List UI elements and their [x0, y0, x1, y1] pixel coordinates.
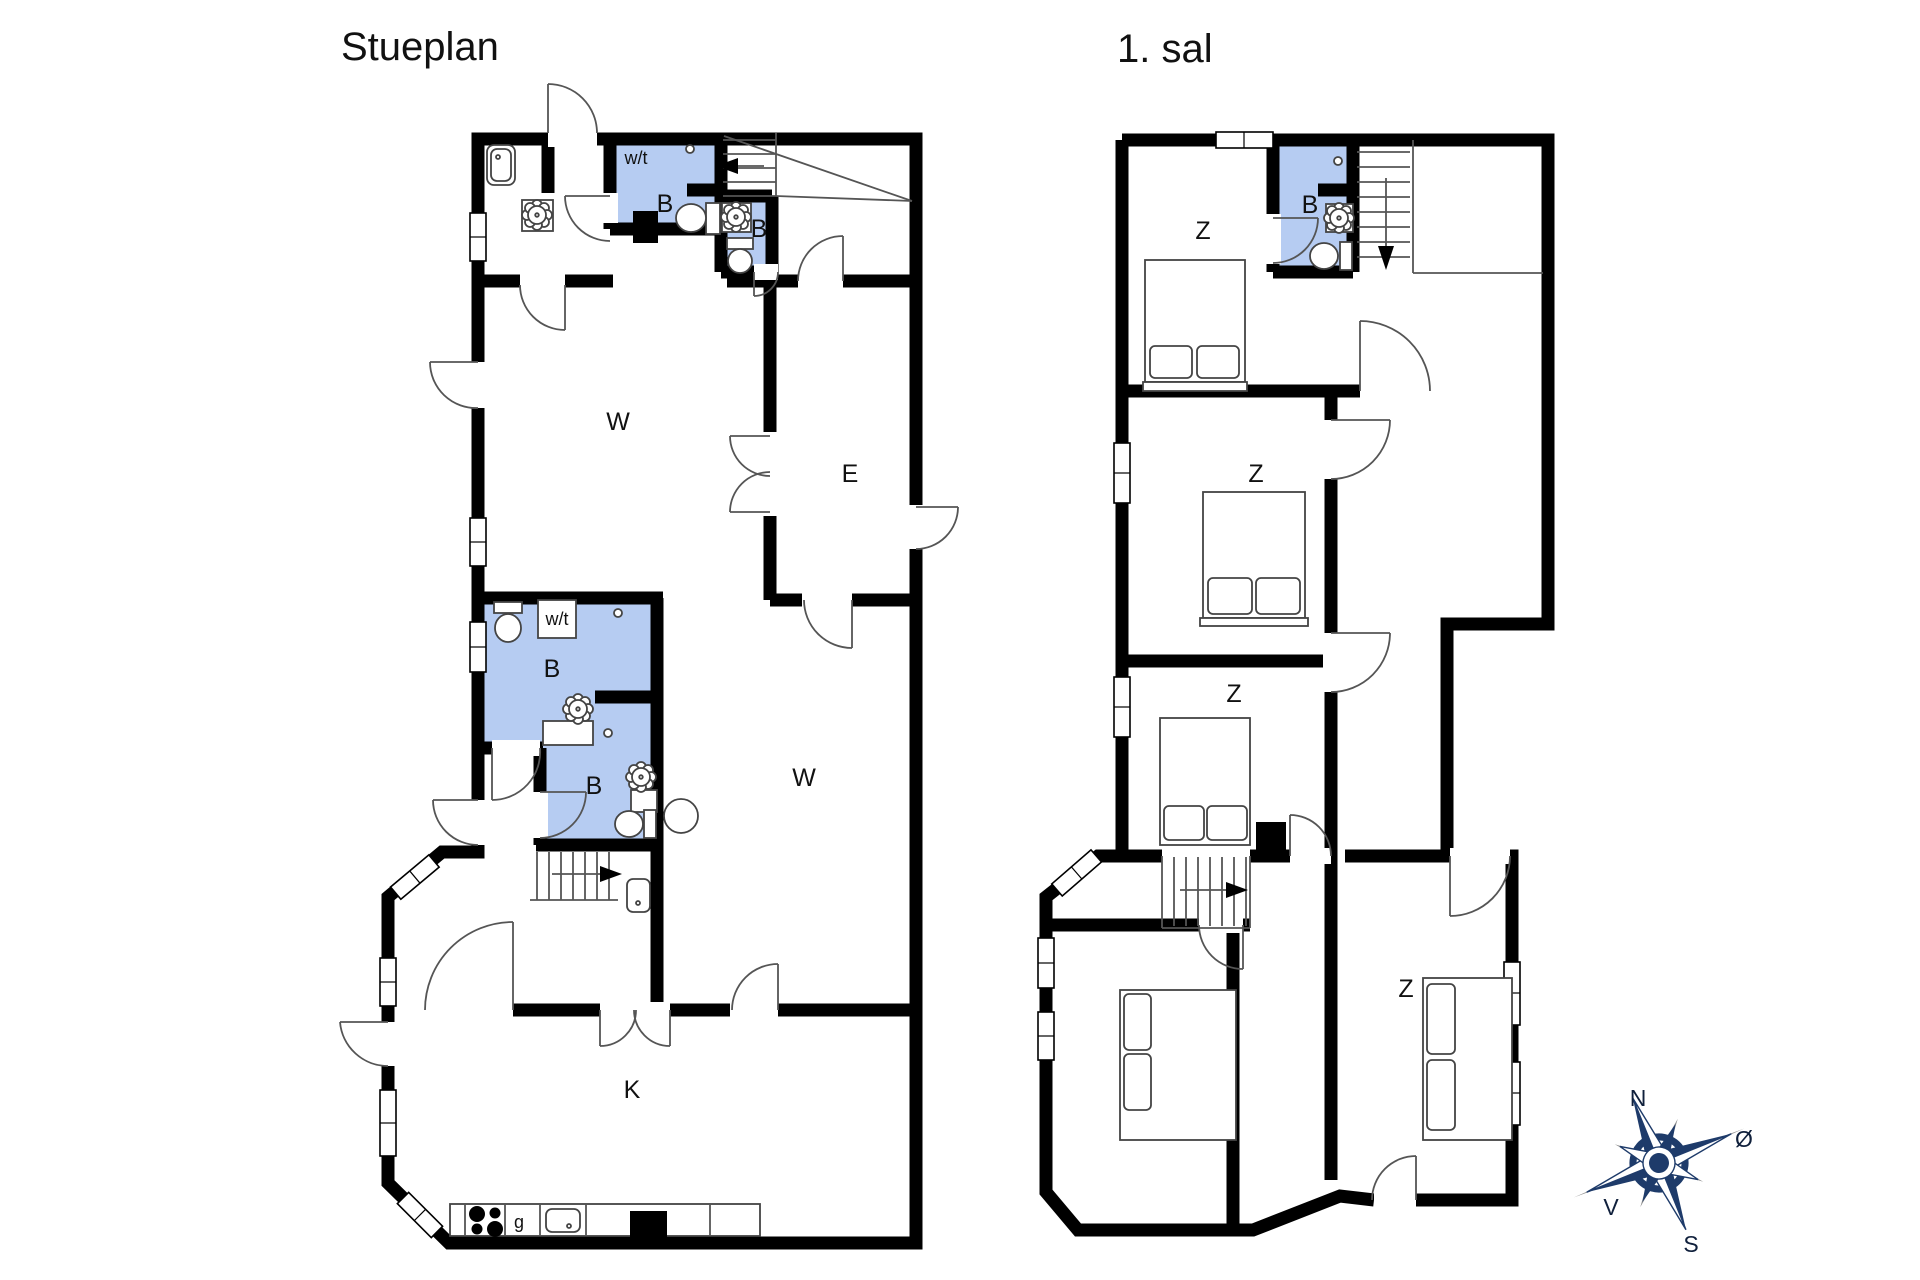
room-label-bath: B	[1302, 191, 1319, 219]
room-label-bath1: B	[657, 190, 674, 218]
window	[1038, 1012, 1054, 1060]
compass-rose: N Ø S V	[1547, 1064, 1771, 1265]
stair-arrow-icon	[1226, 882, 1248, 898]
room-label-bedroom2: Z	[1248, 460, 1263, 488]
chimney	[633, 211, 658, 243]
compass-label-north: N	[1630, 1085, 1647, 1111]
chimney	[630, 1211, 667, 1237]
room-label-living1: W	[606, 408, 630, 436]
bed	[1423, 978, 1512, 1140]
window	[1114, 443, 1130, 503]
vent-dot	[614, 609, 622, 617]
hand-sink	[627, 879, 650, 912]
room-label-bath3: B	[544, 655, 561, 683]
door	[1450, 856, 1510, 916]
window	[391, 855, 440, 899]
window	[397, 1192, 442, 1237]
floorplan-image: Stueplan	[0, 0, 1920, 1280]
sink	[721, 202, 751, 232]
door	[1331, 633, 1390, 692]
room-label-bath4: B	[586, 772, 603, 800]
compass-label-south: S	[1683, 1231, 1698, 1257]
toilet	[1310, 242, 1352, 270]
ground-floor-walls	[388, 139, 916, 1243]
sink	[626, 762, 657, 812]
door	[425, 922, 513, 1010]
room-label-bedroom4: Z	[1398, 975, 1413, 1003]
window	[470, 622, 486, 672]
toilet	[615, 810, 656, 838]
stairs-lower	[530, 852, 622, 900]
stair-arrow-icon	[1378, 246, 1394, 270]
floorplan-canvas: Stueplan	[0, 0, 1920, 1280]
window	[470, 518, 486, 566]
stove-label: g	[514, 1212, 524, 1232]
kitchen-sink	[546, 1209, 580, 1232]
window	[1052, 850, 1102, 896]
stair-arrow-icon	[600, 866, 622, 882]
compass-label-west: V	[1603, 1194, 1619, 1220]
round-basin	[664, 799, 698, 833]
sink	[522, 200, 553, 231]
ground-floor-plan: Stueplan	[340, 25, 958, 1243]
window	[470, 213, 486, 261]
room-label-bath2: B	[751, 215, 768, 243]
bed	[1120, 990, 1236, 1140]
room-label-kitchen: K	[624, 1076, 641, 1104]
window	[1114, 677, 1130, 737]
room-label-wt2: w/t	[544, 609, 568, 629]
kitchen-counter	[450, 1204, 760, 1237]
first-floor-title: 1. sal	[1117, 27, 1213, 71]
compass-label-east: Ø	[1735, 1126, 1753, 1152]
vent-dot	[686, 145, 694, 153]
stairs-down	[1357, 140, 1543, 273]
room-label-bedroom1: Z	[1195, 217, 1210, 245]
chimney	[1256, 822, 1286, 850]
window	[380, 958, 396, 1006]
toilet	[727, 238, 753, 273]
door	[520, 285, 565, 330]
vent-dot	[1334, 157, 1342, 165]
bed	[1200, 492, 1308, 626]
first-floor-plan: 1. sal	[1038, 27, 1548, 1230]
toilet	[676, 203, 720, 234]
window	[380, 1090, 396, 1156]
room-label-living2: W	[792, 764, 816, 792]
sink	[1324, 203, 1354, 233]
ground-floor-title: Stueplan	[341, 25, 499, 69]
bed	[1160, 718, 1250, 845]
door	[548, 84, 597, 133]
door	[1360, 321, 1430, 391]
window	[1038, 938, 1054, 988]
window	[1216, 132, 1273, 148]
bathtub	[487, 145, 515, 185]
toilet	[494, 602, 522, 642]
room-label-bedroom3: Z	[1226, 680, 1241, 708]
room-label-entry: E	[842, 460, 859, 488]
room-label-wt1: w/t	[623, 148, 647, 168]
door	[1331, 420, 1390, 479]
bed	[1143, 260, 1247, 391]
vent-dot	[604, 729, 612, 737]
